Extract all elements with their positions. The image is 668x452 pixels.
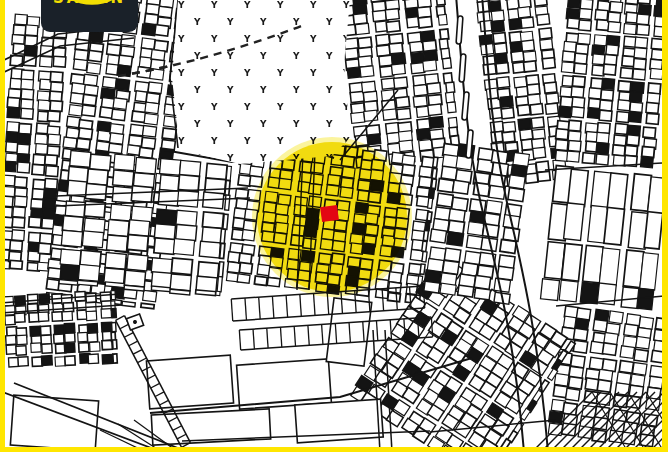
svg-text:Y: Y (210, 136, 218, 146)
svg-text:Y: Y (342, 102, 350, 112)
svg-text:Y: Y (259, 17, 267, 27)
svg-text:Y: Y (292, 51, 300, 61)
svg-text:Y: Y (325, 17, 333, 27)
road-median-island (462, 92, 469, 120)
open-parcel (326, 298, 372, 366)
svg-text:Y: Y (243, 68, 251, 78)
svg-text:Y: Y (309, 68, 317, 78)
svg-text:Y: Y (226, 119, 234, 129)
svg-text:Y: Y (309, 0, 317, 10)
svg-text:Y: Y (325, 119, 333, 129)
svg-text:Y: Y (226, 85, 234, 95)
svg-text:Y: Y (325, 51, 333, 61)
svg-text:Y: Y (259, 51, 267, 61)
road-median-island (456, 16, 463, 44)
cadastral-map: YYYYYYYYYYYYYYYYYYYYYYYYYYYYYYYYYYYYYYYY… (0, 0, 668, 452)
svg-text:Y: Y (342, 0, 350, 10)
property-location-marker[interactable] (320, 205, 339, 222)
svg-text:Y: Y (210, 0, 218, 10)
district (58, 150, 233, 298)
svg-text:Y: Y (243, 136, 251, 146)
well-structure (126, 314, 143, 330)
svg-text:Y: Y (309, 102, 317, 112)
road-median-island (459, 54, 466, 82)
svg-text:Y: Y (177, 34, 185, 44)
svg-text:Y: Y (243, 102, 251, 112)
svg-text:Y: Y (226, 51, 234, 61)
svg-text:Y: Y (210, 34, 218, 44)
svg-text:Y: Y (259, 153, 267, 163)
svg-text:Y: Y (210, 68, 218, 78)
district (554, 0, 668, 169)
svg-text:Y: Y (243, 0, 251, 10)
frame-right-stripe (662, 0, 668, 452)
svg-text:Y: Y (177, 0, 185, 10)
svg-text:Y: Y (177, 68, 185, 78)
frame-left-stripe (0, 0, 5, 452)
svg-text:Y: Y (177, 102, 185, 112)
svg-text:Y: Y (276, 136, 284, 146)
svg-text:Y: Y (292, 17, 300, 27)
frame-bottom-stripe (0, 447, 668, 452)
district (541, 165, 667, 310)
map-stage: YYYYYYYYYYYYYYYYYYYYYYYYYYYYYYYYYYYYYYYY… (0, 0, 668, 452)
svg-text:Y: Y (210, 102, 218, 112)
svg-text:Y: Y (243, 34, 251, 44)
svg-text:Y: Y (276, 68, 284, 78)
svg-text:Y: Y (309, 34, 317, 44)
sakan-logo-badge: SAKAN (41, 0, 138, 32)
svg-text:Y: Y (325, 85, 333, 95)
svg-text:Y: Y (292, 85, 300, 95)
svg-text:Y: Y (193, 17, 201, 27)
smile-arc-icon (41, 0, 138, 8)
svg-text:Y: Y (259, 85, 267, 95)
svg-text:Y: Y (276, 34, 284, 44)
svg-text:Y: Y (193, 119, 201, 129)
svg-text:Y: Y (259, 119, 267, 129)
svg-text:Y: Y (193, 85, 201, 95)
svg-text:Y: Y (292, 119, 300, 129)
svg-text:Y: Y (276, 102, 284, 112)
svg-text:Y: Y (276, 0, 284, 10)
svg-text:Y: Y (226, 17, 234, 27)
district (423, 142, 530, 305)
